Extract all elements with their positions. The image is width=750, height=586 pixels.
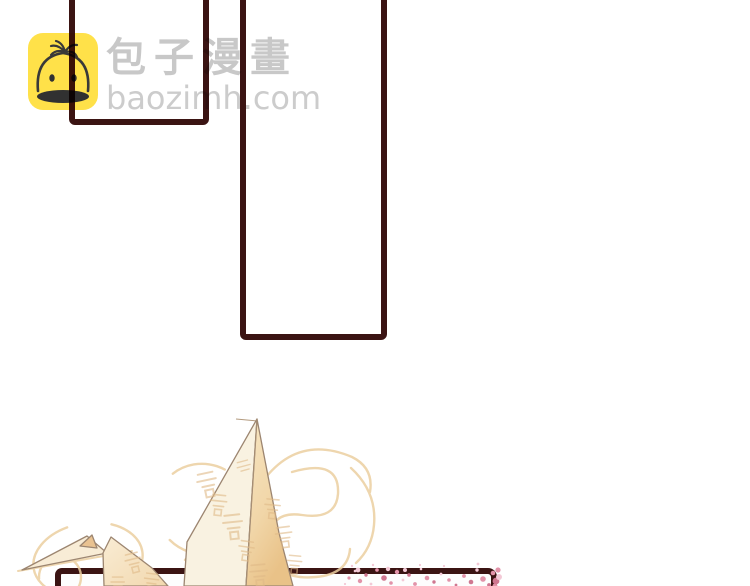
gold-swirl-decorations [18, 449, 374, 586]
paper-crane [22, 419, 293, 586]
crane-big-wing-left-face [184, 419, 257, 586]
comic-panel-top-center [240, 0, 387, 340]
crane-left-wing [22, 536, 107, 570]
comic-panel-bottom [55, 568, 497, 586]
webtoon-page: 包子漫畫 baozimh.com [0, 0, 750, 586]
crane-wing-crease [246, 419, 257, 586]
crane-big-wing-right-face [246, 419, 293, 586]
crane-wing-tip-line [236, 419, 257, 421]
crane-neck-fold [80, 535, 97, 548]
comic-panel-top-left [69, 0, 209, 125]
